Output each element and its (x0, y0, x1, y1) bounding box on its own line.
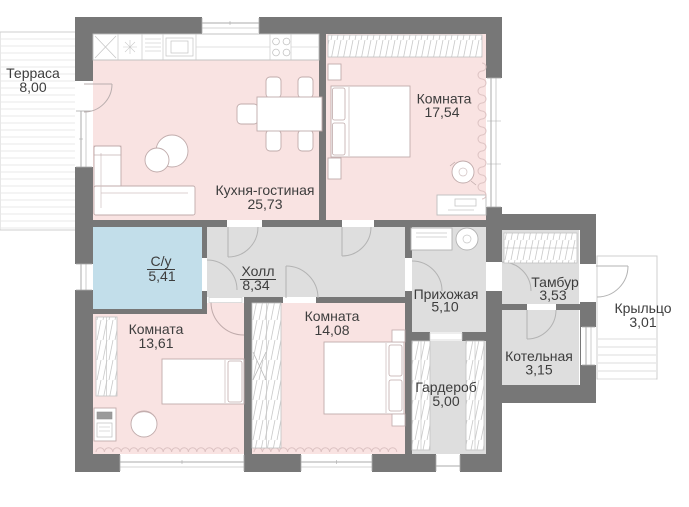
svg-text:5,41: 5,41 (148, 268, 175, 284)
svg-text:8,34: 8,34 (242, 277, 269, 293)
svg-text:17,54: 17,54 (424, 104, 459, 120)
svg-text:3,01: 3,01 (629, 314, 656, 330)
svg-text:С/у: С/у (151, 253, 172, 269)
svg-text:3,53: 3,53 (539, 287, 566, 303)
svg-text:5,00: 5,00 (432, 393, 459, 409)
svg-text:13,61: 13,61 (138, 335, 173, 351)
svg-text:14,08: 14,08 (314, 322, 349, 338)
svg-text:5,10: 5,10 (431, 299, 458, 315)
svg-text:25,73: 25,73 (247, 196, 282, 212)
svg-text:3,15: 3,15 (525, 362, 552, 378)
svg-text:8,00: 8,00 (19, 79, 46, 95)
